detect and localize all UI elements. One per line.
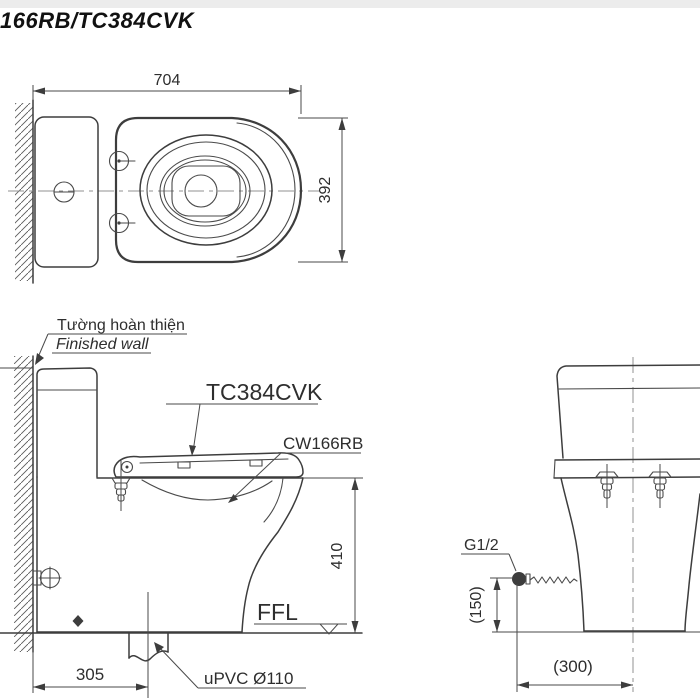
seat-side-view [114, 453, 303, 477]
mount-bolt-left [596, 464, 618, 508]
wall-hatch-top-view [15, 103, 33, 281]
wall-label-en: Finished wall [56, 336, 149, 353]
page-top-strip [0, 0, 700, 8]
seat-hinge-top [110, 152, 136, 171]
dim-305-label: 305 [76, 665, 104, 684]
fixing-point-marker [73, 615, 84, 627]
drain-pipe [129, 592, 168, 698]
seat-hinge-bottom [110, 214, 136, 233]
supply-thread-label: G1/2 [461, 537, 516, 571]
drain-pipe-label: uPVC Ø110 [154, 642, 306, 688]
dimension-150: (150) [468, 578, 513, 632]
bowl-model-text: CW166RB [283, 434, 363, 453]
flex-hose [530, 577, 577, 583]
ffl-marker: FFL [254, 599, 347, 634]
seat-rings [140, 135, 272, 245]
bowl-front-view [492, 478, 700, 632]
dimension-392: 392 [298, 118, 348, 262]
water-supply-connection [512, 572, 577, 586]
top-view: 704 392 [8, 72, 348, 283]
side-view: Tường hoàn thiện Finished wall TC384CVK … [0, 317, 363, 698]
supply-thread-text: G1/2 [464, 537, 499, 554]
dim-392-label: 392 [317, 177, 334, 204]
drawing-title: 166RB/TC384CVK [0, 8, 196, 33]
seat-model-text: TC384CVK [206, 379, 323, 405]
wall-hatch-side-view [14, 356, 33, 652]
ffl-label: FFL [257, 599, 298, 625]
dimension-704: 704 [33, 72, 301, 114]
dimension-410: 410 [303, 478, 363, 633]
dimension-305: 305 [33, 640, 148, 693]
toilet-installation-drawing: 166RB/TC384CVK [0, 0, 700, 700]
dimension-300: (300) [517, 584, 633, 692]
mount-bolt-right [649, 464, 671, 508]
wall-label-vi: Tường hoàn thiện [57, 317, 185, 334]
dim-410-label: 410 [329, 543, 346, 570]
dim-150-label: (150) [468, 586, 485, 623]
dim-300-label: (300) [553, 657, 593, 676]
technical-drawing-page: 166RB/TC384CVK [0, 0, 700, 700]
tank-side-view [37, 368, 97, 477]
dim-704-label: 704 [154, 72, 181, 89]
finished-wall-label: Tường hoàn thiện Finished wall [35, 317, 187, 365]
flush-button [54, 182, 74, 202]
tank-front-view [554, 365, 700, 478]
pipe-label-text: uPVC Ø110 [204, 669, 293, 688]
front-view: G1/2 (150) (300) [461, 357, 700, 692]
